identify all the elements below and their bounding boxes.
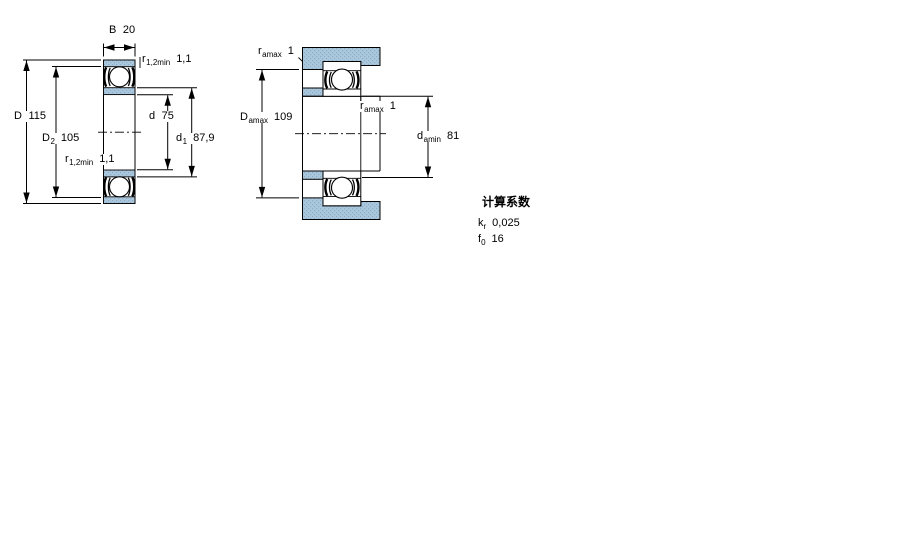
factor-kr: kr0,025 [478, 218, 520, 229]
diagram1-bearing-section [98, 60, 141, 204]
dim-label-d1: d187,9 [175, 133, 216, 144]
dim-label-ramax-mid: ramax1 [359, 101, 397, 112]
bearing-technical-drawing [0, 0, 900, 560]
calculation-factors-heading: 计算系数 [482, 196, 530, 209]
dim-label-d: d75 [148, 111, 175, 122]
dim-label-damin: damin81 [416, 131, 460, 142]
diagram2-abutment-section [295, 48, 386, 220]
dim-label-r12min-top: r1,2min1,1 [141, 54, 192, 65]
dim-label-B: B20 [108, 25, 136, 36]
dim-label-r12min-bottom: r1,2min1,1 [64, 154, 115, 165]
dim-label-Damax: Damax109 [239, 112, 293, 123]
dim-label-D: D115 [13, 111, 47, 122]
dim-label-ramax-top: ramax1 [257, 46, 295, 57]
factor-f0: f016 [478, 234, 504, 245]
dim-label-D2: D2105 [41, 133, 80, 144]
technical-drawing-page: B20 r1,2min1,1 D115 D2105 d75 d187,9 r1,… [0, 0, 900, 560]
